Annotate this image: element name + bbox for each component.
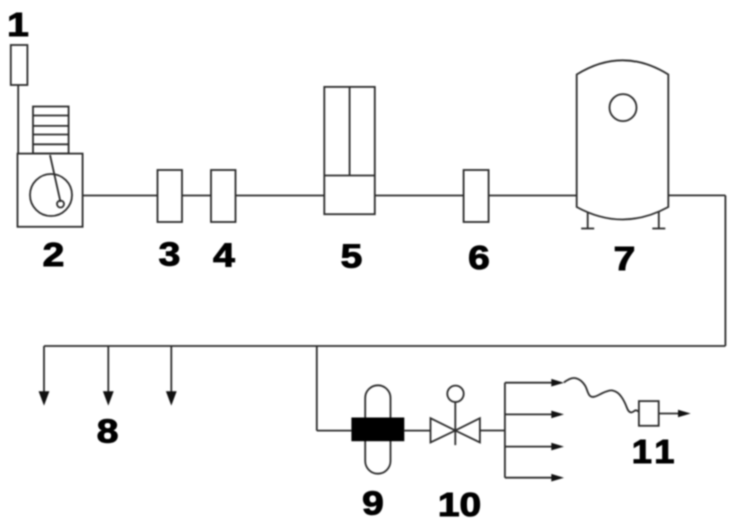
svg-text:10: 10: [438, 486, 481, 521]
svg-text:1: 1: [7, 6, 29, 43]
svg-text:1: 1: [654, 434, 674, 470]
svg-text:4: 4: [213, 236, 235, 273]
svg-text:5: 5: [341, 237, 363, 274]
svg-text:8: 8: [97, 412, 119, 449]
svg-text:2: 2: [43, 236, 65, 273]
svg-text:6: 6: [468, 239, 490, 276]
svg-text:9: 9: [362, 484, 384, 521]
svg-text:3: 3: [159, 235, 181, 272]
svg-text:7: 7: [614, 240, 636, 277]
svg-text:1: 1: [632, 434, 652, 470]
